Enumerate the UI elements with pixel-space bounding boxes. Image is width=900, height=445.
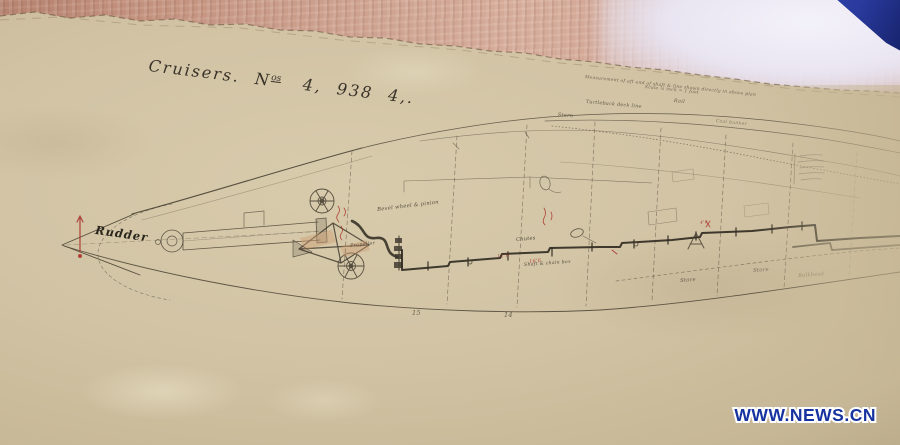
store-label-1: Store	[680, 278, 696, 284]
turtleback-label: Turtleback deck line	[586, 101, 642, 111]
propeller-label: Propeller	[350, 242, 376, 249]
stern-label: Stern	[558, 113, 574, 119]
red-dimension-1: 11'6	[497, 254, 510, 260]
rudder-label: Rudder	[94, 225, 148, 244]
news-watermark: WWW.NEWS.CN	[734, 405, 876, 426]
station-number-14: 14	[504, 312, 513, 319]
bulkhead-label: Bulkhead	[798, 272, 825, 279]
red-dimension-3: 4'6	[700, 221, 708, 226]
news-photo: Cruisers. Nos 4, 938 4,. RudderBevel whe…	[0, 0, 900, 445]
coal-bunker-label: Coal bunker	[716, 120, 748, 128]
bevel-wheel-label: Bevel wheel & pinion	[377, 200, 439, 213]
annotation-layer: RudderBevel wheel & pinionPropellerMeasu…	[0, 0, 900, 445]
station-number-15: 15	[412, 310, 421, 317]
store-label-2: Store	[753, 268, 769, 274]
chutes-label: Chutes	[516, 236, 536, 243]
rail-label: Rail	[673, 99, 685, 105]
